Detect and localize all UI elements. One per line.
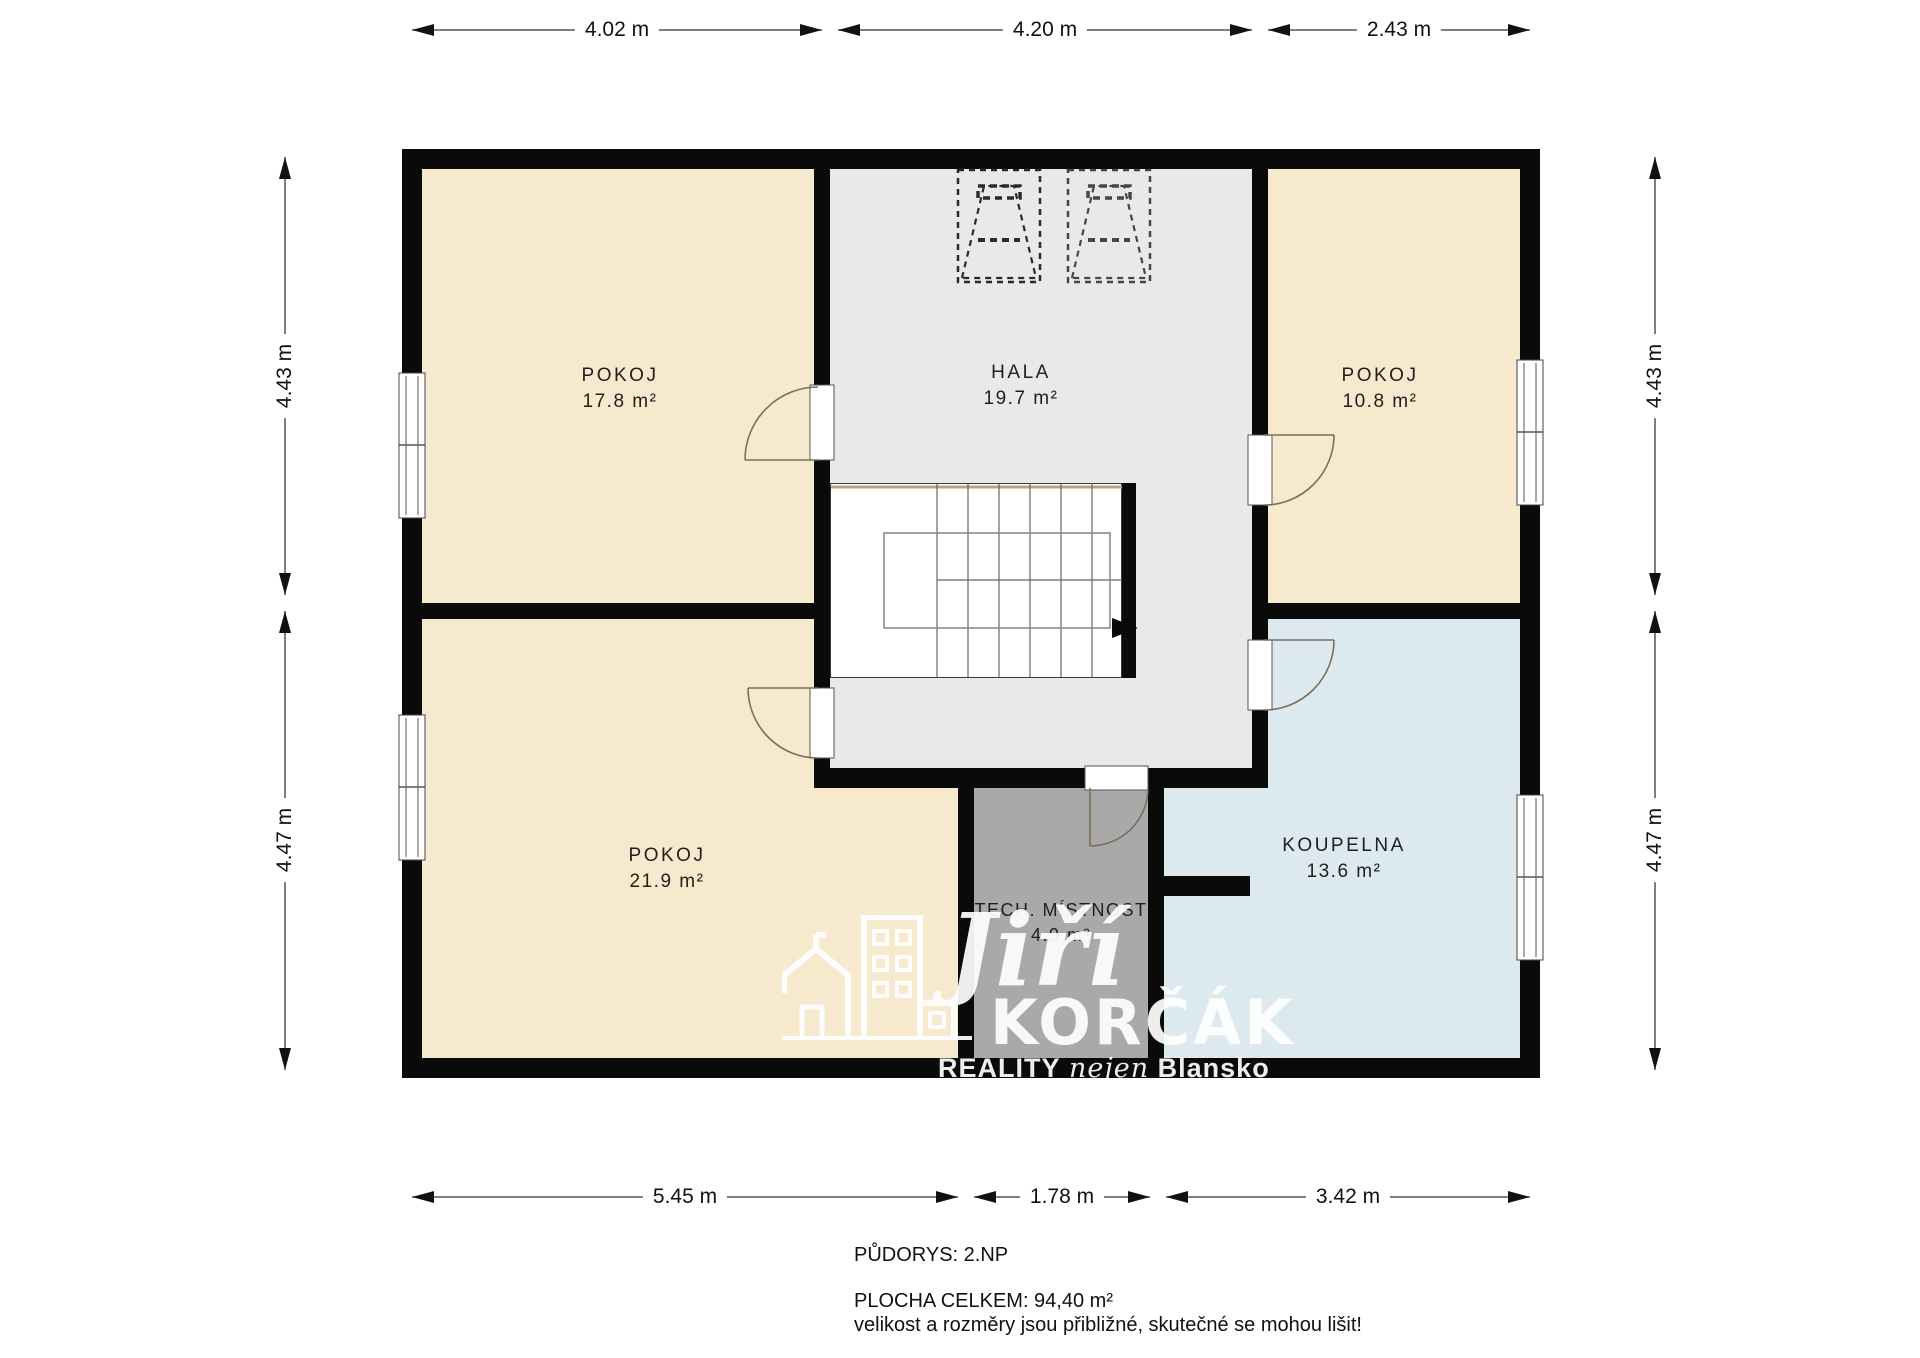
dim-bottom-2: 1.78 m	[1020, 1185, 1104, 1209]
dim-top-3: 2.43 m	[1357, 18, 1441, 42]
watermark-script-text: Jiří	[948, 900, 1124, 1000]
watermark-logo: Jiří KORČÁK REALITY nejen Blansko	[0, 0, 1920, 1358]
floor-plan-page: POKOJ 17.8 m² HALA 19.7 m² POKOJ 10.8 m²…	[0, 0, 1920, 1358]
dim-bottom-1: 5.45 m	[643, 1185, 727, 1209]
plan-title: PŮDORYS: 2.NP	[854, 1243, 1008, 1267]
dim-left-2: 4.47 m	[273, 798, 297, 882]
watermark-tagline: REALITY nejen Blansko	[938, 1053, 1270, 1084]
dim-right-1: 4.43 m	[1643, 334, 1667, 418]
watermark-name-text: KORČÁK	[990, 992, 1295, 1054]
dim-right-2: 4.47 m	[1643, 798, 1667, 882]
dim-top-2: 4.20 m	[1003, 18, 1087, 42]
dim-top-1: 4.02 m	[575, 18, 659, 42]
dim-left-1: 4.43 m	[273, 334, 297, 418]
watermark-house-icon	[782, 915, 972, 1040]
plan-disclaimer: velikost a rozměry jsou přibližné, skute…	[854, 1313, 1362, 1337]
plan-total-area: PLOCHA CELKEM: 94,40 m²	[854, 1289, 1113, 1313]
dim-bottom-3: 3.42 m	[1306, 1185, 1390, 1209]
